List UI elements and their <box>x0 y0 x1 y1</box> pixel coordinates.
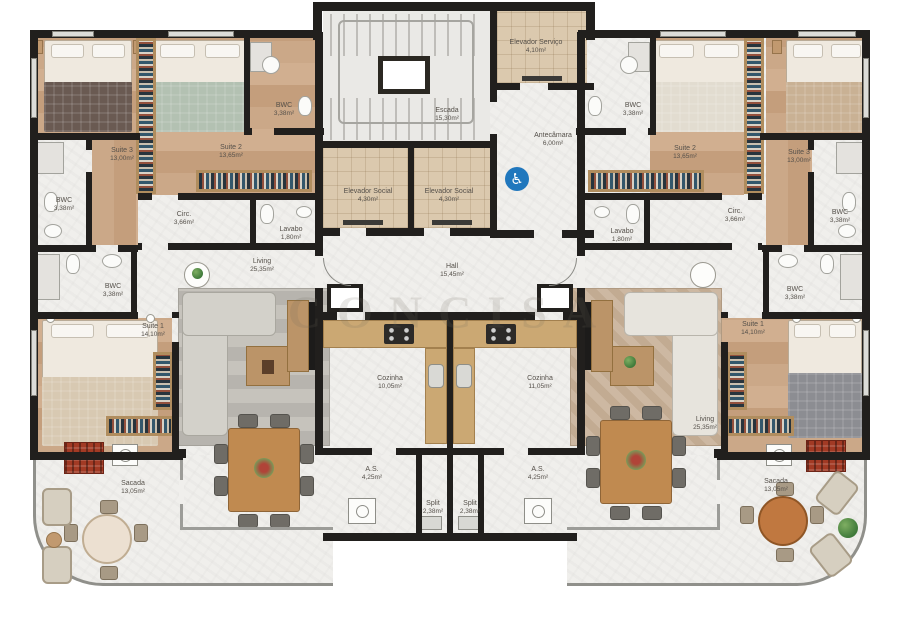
pillow <box>51 44 84 58</box>
dining-chair <box>672 436 686 456</box>
room-area: 3,38m² <box>54 205 74 213</box>
room-area: 13,65m² <box>673 153 697 161</box>
room-area: 3,38m² <box>785 294 805 302</box>
wardrobe <box>153 352 173 410</box>
window <box>798 31 856 37</box>
room-name: Split <box>460 499 480 508</box>
wheelchair-glyph: ♿ <box>510 170 523 188</box>
wall <box>758 243 762 250</box>
elevator-door-sill <box>343 220 383 225</box>
room-label-right-circ: Circ.3,66m² <box>725 207 745 225</box>
dining-chair <box>642 406 662 420</box>
sink <box>44 224 62 238</box>
room-name: Circ. <box>725 207 745 216</box>
wall <box>548 83 594 90</box>
wall <box>650 38 656 128</box>
wall <box>86 140 92 150</box>
shower <box>34 142 64 174</box>
room-label-elevador-social-1: Elevador Social4,30m² <box>344 187 393 205</box>
wall <box>721 342 728 455</box>
dining-chair <box>270 414 290 428</box>
room-name: BWC <box>830 208 850 217</box>
room-label-right-as: A.S.4,25m² <box>528 465 548 483</box>
table-centerpiece <box>254 458 274 478</box>
table-centerpiece <box>626 450 646 470</box>
toilet <box>626 204 640 224</box>
room-area: 1,80m² <box>280 234 303 242</box>
balcony-chair <box>100 500 118 514</box>
room-name: Suite 1 <box>741 320 765 329</box>
room-name: A.S. <box>528 465 548 474</box>
dining-chair <box>214 476 228 496</box>
wall <box>30 312 138 319</box>
dining-chair <box>642 506 662 520</box>
kitchen-sink <box>456 364 472 388</box>
room-label-right-split: Split2,38m² <box>460 499 480 517</box>
room-name: Circ. <box>174 210 194 219</box>
wardrobe <box>588 170 704 192</box>
room-label-right-bwc-suite-3: BWC3,38m² <box>830 208 850 226</box>
lounge-chair <box>42 546 72 584</box>
dining-chair <box>586 468 600 488</box>
wall <box>138 193 152 200</box>
balcony-chair <box>100 566 118 580</box>
door-opening <box>716 480 721 504</box>
room-label-escada: Escada15,30m² <box>435 106 459 124</box>
wall <box>172 342 179 455</box>
sink <box>594 206 610 218</box>
room-label-hall: Hall15,45m² <box>440 262 464 280</box>
balcony-chair <box>134 524 148 542</box>
room-name: Suite 3 <box>110 146 134 155</box>
balcony-chair <box>810 506 824 524</box>
window <box>31 58 37 118</box>
sink <box>838 224 856 238</box>
wall <box>450 228 490 236</box>
wardrobe <box>106 416 174 436</box>
floor-plan: ♿ <box>0 0 900 621</box>
room-area: 13,65m² <box>219 152 243 160</box>
coffee-table-tray <box>262 360 274 374</box>
bed-blanket <box>44 82 132 132</box>
wall <box>131 245 137 318</box>
wall <box>721 312 728 318</box>
room-area: 6,00m² <box>534 140 572 148</box>
room-area: 4,30m² <box>425 196 474 204</box>
room-area: 3,66m² <box>725 216 745 224</box>
plant <box>838 518 858 538</box>
room-label-left-bwc-suite-1: BWC3,38m² <box>103 282 123 300</box>
sink <box>296 206 312 218</box>
wall <box>30 245 96 252</box>
wall <box>717 452 870 460</box>
side-table <box>46 532 62 548</box>
room-name: A.S. <box>362 465 382 474</box>
window <box>52 31 94 37</box>
elevator-door-sill <box>522 76 562 81</box>
window <box>31 330 37 396</box>
pillow <box>51 324 94 338</box>
dining-chair <box>238 514 258 528</box>
wall <box>490 134 497 238</box>
room-name: Cozinha <box>527 374 553 383</box>
wardrobe <box>726 416 794 436</box>
door-opening <box>577 256 585 288</box>
wall <box>762 245 782 252</box>
pillow <box>831 44 861 58</box>
kitchen-sink <box>428 364 444 388</box>
wall <box>416 455 422 533</box>
kitchen-counter <box>453 348 475 444</box>
wall <box>576 128 626 135</box>
wall <box>322 141 497 148</box>
room-name: Elevador Social <box>425 187 474 196</box>
round-table <box>82 514 132 564</box>
dining-chair <box>300 476 314 496</box>
wall <box>274 128 324 135</box>
wall <box>578 193 722 200</box>
pillow <box>205 44 241 58</box>
wall <box>760 133 870 140</box>
wall <box>648 128 656 135</box>
wardrobe <box>744 38 764 194</box>
room-label-right-suite-3: Suite 313,00m² <box>787 148 811 166</box>
wall <box>528 448 577 455</box>
window <box>863 330 869 396</box>
sink <box>102 254 122 268</box>
room-name: Living <box>693 415 717 424</box>
room-label-left-suite-2: Suite 213,65m² <box>219 143 243 161</box>
room-area: 2,38m² <box>423 508 443 516</box>
wheelchair-icon: ♿ <box>505 167 529 191</box>
round-table <box>758 496 808 546</box>
dining-chair <box>672 468 686 488</box>
elevator-door-sill <box>432 220 472 225</box>
room-area: 15,30m² <box>435 115 459 123</box>
room-area: 13,00m² <box>110 155 134 163</box>
room-name: Suite 3 <box>787 148 811 157</box>
dining-chair <box>238 414 258 428</box>
dining-chair <box>214 444 228 464</box>
wall <box>178 193 322 200</box>
room-name: BWC <box>274 101 294 110</box>
room-name: Suite 2 <box>673 144 697 153</box>
room-area: 3,38m² <box>103 291 123 299</box>
room-area: 4,30m² <box>344 196 393 204</box>
double-bed <box>152 40 248 132</box>
wall <box>562 230 594 238</box>
wall <box>177 449 186 458</box>
glass-wall <box>180 527 333 530</box>
balcony-chair <box>740 506 754 524</box>
room-area: 3,38m² <box>623 110 643 118</box>
wall <box>748 193 762 200</box>
wall <box>86 172 92 248</box>
room-name: Cozinha <box>377 374 403 383</box>
room-area: 4,25m² <box>528 474 548 482</box>
wall <box>250 200 256 245</box>
room-area: 13,00m² <box>787 157 811 165</box>
sink <box>262 56 280 74</box>
wall <box>808 172 814 248</box>
washing-machine <box>524 498 552 524</box>
glass-wall <box>567 527 720 530</box>
sink <box>778 254 798 268</box>
room-label-elevador-social-2: Elevador Social4,30m² <box>425 187 474 205</box>
toilet <box>66 254 80 274</box>
dining-chair <box>586 436 600 456</box>
room-area: 10,05m² <box>377 383 403 391</box>
washing-machine <box>348 498 376 524</box>
toilet <box>820 254 834 274</box>
toilet <box>588 96 602 116</box>
wall <box>366 228 424 236</box>
room-label-left-lavabo: Lavabo1,80m² <box>280 225 303 243</box>
room-name: Elevador Serviço <box>510 38 563 47</box>
room-name: BWC <box>54 196 74 205</box>
watermark: CONCISA <box>288 286 612 339</box>
wall <box>244 38 250 128</box>
room-label-left-suite-3: Suite 313,00m² <box>110 146 134 164</box>
pillow <box>160 44 196 58</box>
room-area: 4,10m² <box>510 47 563 55</box>
plant <box>192 268 203 279</box>
room-label-left-circ: Circ.3,66m² <box>174 210 194 228</box>
wall <box>490 10 497 102</box>
wardrobe <box>196 170 312 192</box>
room-name: BWC <box>103 282 123 291</box>
room-label-right-bwc-suite-1: BWC3,38m² <box>785 285 805 303</box>
wall <box>644 200 650 245</box>
room-label-left-bwc-suite-3: BWC3,38m² <box>54 196 74 214</box>
balcony-chair <box>64 524 78 542</box>
room-label-left-split: Split2,38m² <box>423 499 443 517</box>
window <box>863 58 869 118</box>
nightstand <box>772 40 782 54</box>
wall <box>323 533 577 541</box>
sofa-chaise <box>182 292 276 336</box>
kitchen-counter <box>425 348 447 444</box>
wall <box>30 452 183 460</box>
wall <box>447 320 453 533</box>
wall <box>408 148 414 230</box>
room-name: Hall <box>440 262 464 271</box>
pillow <box>794 324 821 338</box>
room-name: BWC <box>785 285 805 294</box>
room-label-right-cozinha: Cozinha11,05m² <box>527 374 553 392</box>
room-label-left-cozinha: Cozinha10,05m² <box>377 374 403 392</box>
window <box>168 31 234 37</box>
pillow <box>659 44 694 58</box>
room-label-left-bwc-suite-2: BWC3,38m² <box>274 101 294 119</box>
room-area: 11,05m² <box>527 383 553 391</box>
wall <box>577 32 585 256</box>
room-area: 14,10m² <box>141 331 165 339</box>
room-label-right-suite-2: Suite 213,65m² <box>673 144 697 162</box>
room-name: Sacada <box>121 479 145 488</box>
double-bed <box>788 320 862 438</box>
room-name: Elevador Social <box>344 187 393 196</box>
room-label-antecamara: Antecâmara6,00m² <box>534 131 572 149</box>
double-bed <box>44 40 132 132</box>
room-label-right-bwc-suite-2: BWC3,38m² <box>623 101 643 119</box>
room-name: Lavabo <box>611 227 634 236</box>
wall <box>453 448 504 455</box>
wall <box>322 228 340 236</box>
wall <box>490 230 534 238</box>
room-area: 13,05m² <box>764 486 788 494</box>
double-bed <box>652 40 746 132</box>
wall <box>396 448 447 455</box>
side-table <box>690 262 716 288</box>
toilet <box>298 96 312 116</box>
bed-blanket <box>652 82 746 132</box>
wall <box>30 133 140 140</box>
room-area: 4,25m² <box>362 474 382 482</box>
room-name: Antecâmara <box>534 131 572 140</box>
room-name: Escada <box>435 106 459 115</box>
room-area: 2,38m² <box>460 508 480 516</box>
bed-blanket <box>786 82 868 132</box>
room-label-right-suite-1: Suite 114,10m² <box>741 320 765 338</box>
room-name: Split <box>423 499 443 508</box>
pillow <box>92 44 125 58</box>
pillow <box>704 44 739 58</box>
wardrobe <box>136 38 156 194</box>
dining-chair <box>270 514 290 528</box>
room-label-left-suite-1: Suite 114,10m² <box>141 322 165 340</box>
dining-chair <box>610 406 630 420</box>
room-area: 25,35m² <box>250 266 274 274</box>
wall <box>714 449 723 458</box>
room-area: 1,80m² <box>611 236 634 244</box>
room-label-right-lavabo: Lavabo1,80m² <box>611 227 634 245</box>
door-opening <box>315 256 323 288</box>
wall <box>138 243 142 250</box>
room-name: Sacada <box>764 477 788 486</box>
room-area: 15,45m² <box>440 271 464 279</box>
sink <box>620 56 638 74</box>
room-area: 25,35m² <box>693 424 717 432</box>
sofa-chaise <box>624 292 718 336</box>
room-label-right-living: Living25,35m² <box>693 415 717 433</box>
lounge-chair <box>42 488 72 526</box>
wall <box>323 448 372 455</box>
wall <box>762 312 870 319</box>
wall <box>313 2 595 11</box>
balcony-chair <box>776 548 794 562</box>
wall <box>578 243 732 250</box>
wall <box>804 245 870 252</box>
bed-blanket <box>788 373 862 438</box>
plant <box>624 356 636 368</box>
room-area: 13,05m² <box>121 488 145 496</box>
bed-blanket <box>152 82 248 132</box>
room-label-right-sacada: Sacada13,05m² <box>764 477 788 495</box>
room-name: Lavabo <box>280 225 303 234</box>
pillow <box>793 44 823 58</box>
wall <box>168 243 322 250</box>
room-area: 3,66m² <box>174 219 194 227</box>
dining-chair <box>300 444 314 464</box>
wall <box>497 83 520 90</box>
room-label-left-living: Living25,35m² <box>250 257 274 275</box>
double-bed <box>786 40 868 132</box>
room-name: Suite 1 <box>141 322 165 331</box>
room-name: BWC <box>623 101 643 110</box>
room-name: Suite 2 <box>219 143 243 152</box>
room-area: 14,10m² <box>741 329 765 337</box>
toilet <box>260 204 274 224</box>
room-label-elevador-servico: Elevador Serviço4,10m² <box>510 38 563 56</box>
door-opening <box>179 480 184 504</box>
wall <box>763 252 769 318</box>
wall <box>478 455 484 533</box>
wall <box>172 312 179 318</box>
dining-chair <box>610 506 630 520</box>
wall <box>244 128 252 135</box>
room-area: 3,38m² <box>274 110 294 118</box>
stairwell-void <box>378 56 430 94</box>
wardrobe <box>727 352 747 410</box>
room-label-left-as: A.S.4,25m² <box>362 465 382 483</box>
room-label-left-sacada: Sacada13,05m² <box>121 479 145 497</box>
room-area: 3,38m² <box>830 217 850 225</box>
window <box>660 31 726 37</box>
pillow <box>829 324 856 338</box>
room-name: Living <box>250 257 274 266</box>
